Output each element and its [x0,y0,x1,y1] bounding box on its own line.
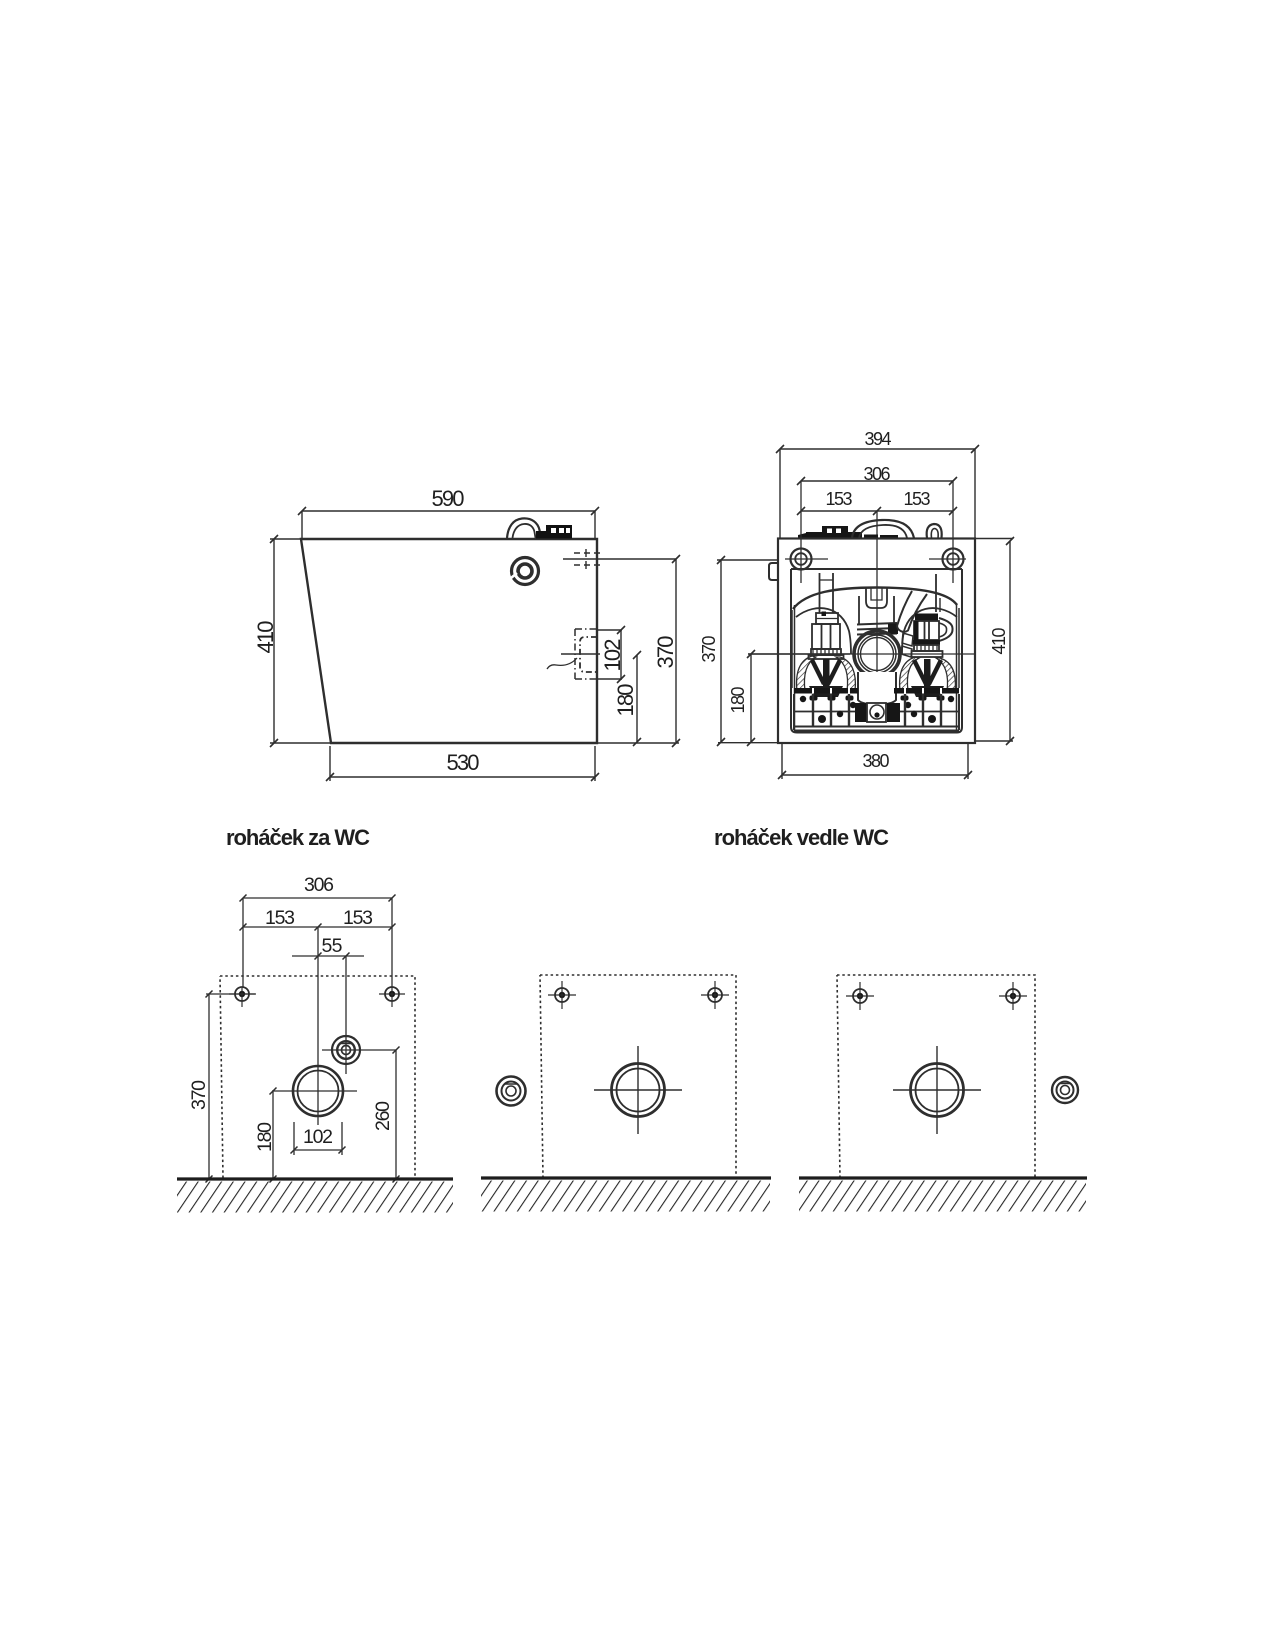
svg-text:370: 370 [653,636,678,669]
svg-text:260: 260 [372,1101,394,1131]
svg-text:370: 370 [699,636,719,663]
svg-text:370: 370 [188,1080,210,1110]
svg-text:55: 55 [322,935,343,957]
svg-text:590: 590 [432,486,465,511]
svg-text:102: 102 [303,1126,333,1148]
svg-text:306: 306 [304,874,334,896]
svg-text:530: 530 [447,750,480,775]
svg-text:180: 180 [613,684,638,717]
svg-text:410: 410 [989,628,1009,655]
svg-text:roháček za WC: roháček za WC [226,825,370,850]
svg-text:153: 153 [904,489,931,509]
svg-text:roháček vedle WC: roháček vedle WC [714,825,889,850]
svg-text:180: 180 [728,687,748,714]
svg-text:394: 394 [865,429,892,449]
svg-text:153: 153 [265,907,295,929]
svg-text:380: 380 [863,751,890,771]
svg-text:153: 153 [826,489,853,509]
svg-text:153: 153 [343,907,373,929]
